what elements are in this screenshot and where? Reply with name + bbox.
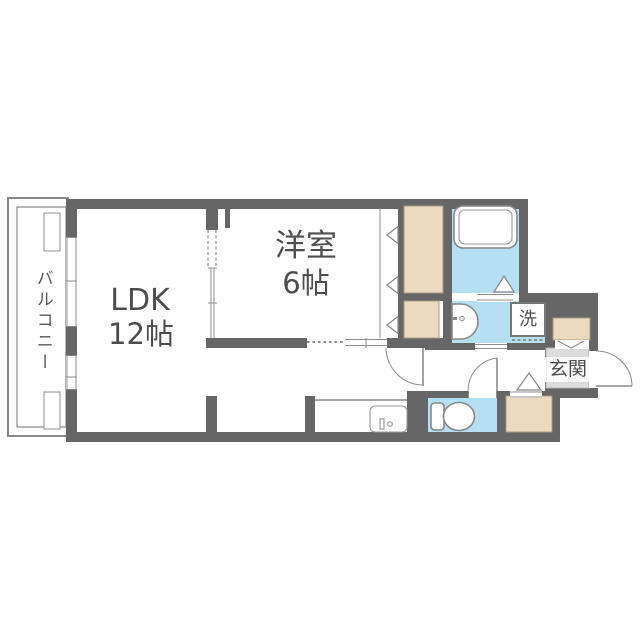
kitchen-sink-icon [370,406,407,432]
toilet-bowl-icon [444,403,475,431]
closet-door-icon [387,227,398,244]
ac-unit-icon [44,213,60,251]
ldk-bedroom-partition [207,230,218,338]
ac-unit-icon [44,392,60,429]
laundry-label: 洗 [511,303,545,336]
bedroom-closet-lower [404,301,439,338]
closet-door-icon [387,277,398,294]
kitchen [315,400,407,432]
storage [506,396,552,432]
storage-folding-door-icon [517,373,541,390]
balcony-label: バルコニー [33,256,52,386]
toilet-tank-icon [431,403,444,430]
toilet-door-arc [468,358,497,391]
entrance-label: 玄関 [545,357,591,382]
ldk-windows [66,237,77,390]
floorplan-canvas: バルコニー LDK 12帖 洋室 6帖 洗 玄関 [0,0,640,640]
bedroom-size-label: 6帖 [256,268,356,300]
entrance-door-arc [596,351,632,386]
washbasin-icon [452,304,478,339]
bedroom-label: 洋室 [256,229,356,263]
hall-door-arc [386,348,423,385]
storage-door [510,373,542,398]
closet-door-icon [387,317,398,334]
hall-door [386,348,423,386]
bedroom-closet [404,206,443,293]
bedroom-south-openings [307,338,387,348]
ldk-size-label: 12帖 [91,319,191,351]
shoe-cabinet [553,318,590,340]
ldk-label: LDK [90,284,190,317]
